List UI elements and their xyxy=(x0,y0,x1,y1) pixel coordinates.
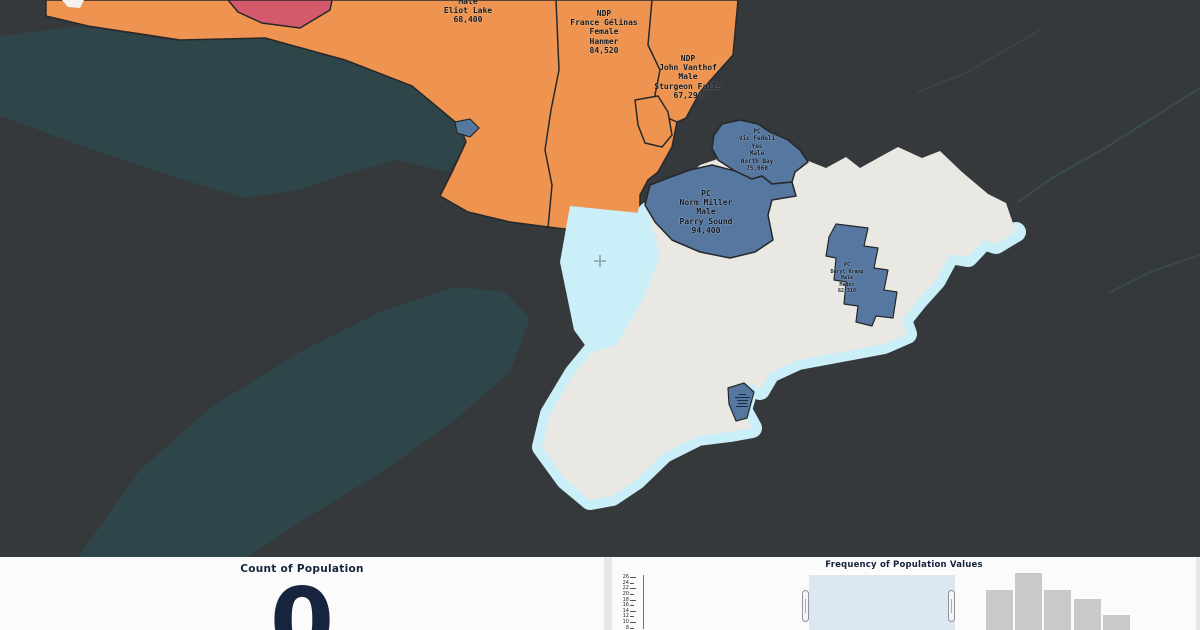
histogram-card: Frequency of Population Values 26 24 22 … xyxy=(612,557,1196,630)
brush-handle-left[interactable] xyxy=(802,590,809,622)
label-line: North Bay xyxy=(739,158,775,165)
district-label-hanmer: NDP France Gélinas Female Hanmer 84,520 xyxy=(570,9,637,55)
label-line: Male xyxy=(739,150,775,157)
y-tick xyxy=(630,583,634,584)
district-label-north-bay: PC Vic Fedeli Yes Male North Bay 75,060 xyxy=(739,128,775,172)
y-tick xyxy=(630,600,636,601)
y-axis-line xyxy=(643,575,644,629)
histogram-y-axis: 26 24 22 20 18 16 14 12 10 8 xyxy=(616,575,642,630)
count-card: Count of Population 0 xyxy=(0,557,604,630)
label-line: 62,310 xyxy=(830,288,863,295)
brush-handle-right[interactable] xyxy=(948,590,955,622)
y-tick xyxy=(630,588,636,589)
label-line: Male xyxy=(830,275,863,282)
y-tick xyxy=(630,611,636,612)
label-line: Sturgeon Falls xyxy=(654,82,721,91)
bottom-panel: Count of Population 0 Frequency of Popul… xyxy=(0,557,1200,630)
label-line: 94,400 xyxy=(680,226,733,235)
label-line: Male xyxy=(654,72,721,81)
label-line: NDP xyxy=(570,9,637,18)
histogram-title: Frequency of Population Values xyxy=(612,560,1196,570)
label-line: Male xyxy=(680,207,733,216)
histogram-bar[interactable] xyxy=(985,590,1014,630)
y-tick xyxy=(630,594,634,595)
label-line: Parry Sound xyxy=(680,217,733,226)
district-label-madoc: PC Daryl Kramp Male Madoc 62,310 xyxy=(830,262,863,295)
label-line: 84,520 xyxy=(570,46,637,55)
label-line: 67,290 xyxy=(654,91,721,100)
label-line: 68,400 xyxy=(444,15,492,24)
label-line: 75,060 xyxy=(739,165,775,172)
y-tick xyxy=(630,577,636,578)
label-line: PC xyxy=(830,262,863,269)
histogram-brush[interactable] xyxy=(809,575,955,630)
label-line: PC xyxy=(680,189,733,198)
histogram-bar[interactable] xyxy=(1102,615,1131,630)
histogram-bar[interactable] xyxy=(1073,599,1102,630)
map-canvas[interactable]: Male Eliot Lake 68,400 NDP France Gélina… xyxy=(0,0,1200,557)
dashboard: Male Eliot Lake 68,400 NDP France Gélina… xyxy=(0,0,1200,630)
label-line: Vic Fedeli xyxy=(739,135,775,142)
label-line: Hanmer xyxy=(570,37,637,46)
district-label-parry-sound: PC Norm Miller Male Parry Sound 94,400 xyxy=(680,189,733,235)
histogram-bar[interactable] xyxy=(1043,590,1072,630)
count-card-value: 0 xyxy=(0,576,604,630)
y-tick xyxy=(630,622,636,623)
y-tick xyxy=(630,616,634,617)
label-line: NDP xyxy=(654,54,721,63)
district-label-sturgeon-falls: NDP John Vanthof Male Sturgeon Falls 67,… xyxy=(654,54,721,100)
label-line: Female xyxy=(570,27,637,36)
histogram-bar[interactable] xyxy=(1014,573,1043,630)
y-tick xyxy=(630,605,634,606)
district-label-tiny-illegible xyxy=(733,392,751,407)
y-tick xyxy=(630,628,634,629)
y-tick-label: 8 xyxy=(616,626,629,630)
district-label-eliot-lake: Male Eliot Lake 68,400 xyxy=(444,0,492,25)
map-cursor-crosshair xyxy=(599,255,601,267)
